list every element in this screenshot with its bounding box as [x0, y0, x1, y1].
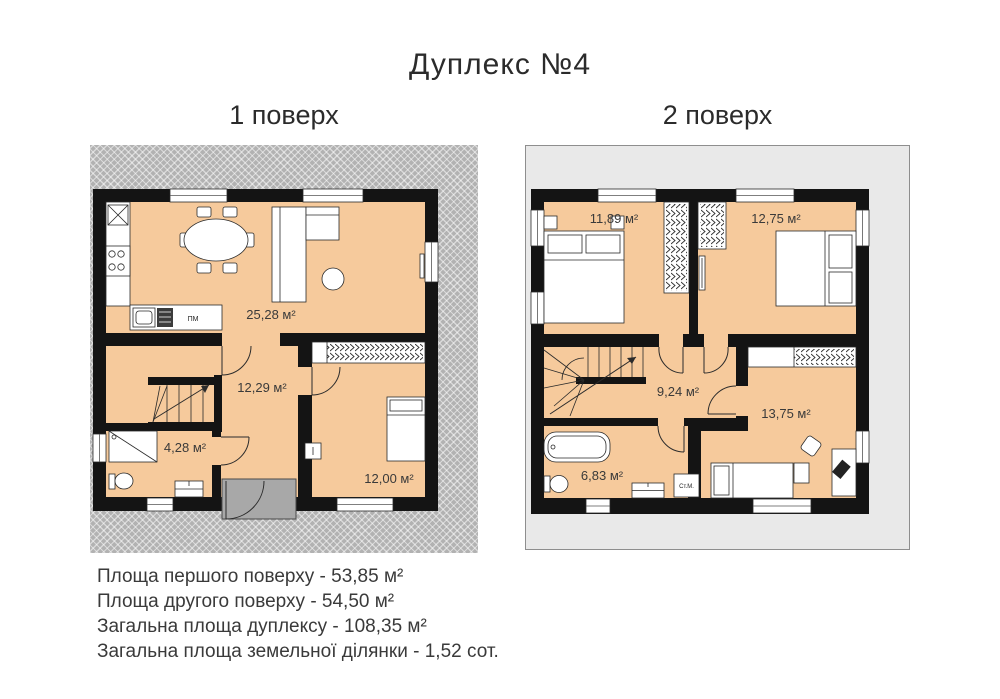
- floor2-drawing: Ст.М. 11,89 м² 12,75 м² 9,24 м²: [526, 146, 909, 549]
- bed-left: [544, 216, 624, 323]
- bathroom-area-label: 4,28 м²: [164, 440, 207, 455]
- washing-machine: Ст.М.: [674, 474, 699, 497]
- sink: [632, 483, 664, 498]
- bedroom-small-area-label: 13,75 м²: [761, 406, 811, 421]
- entrance-porch: [222, 479, 296, 519]
- bed-right: [776, 231, 856, 306]
- radiator-icon: [420, 254, 424, 278]
- hall-area-label: 12,29 м²: [237, 380, 287, 395]
- summary-block: Площа першого поверху - 53,85 м² Площа д…: [97, 564, 499, 664]
- desk: [832, 449, 856, 496]
- bed: [387, 397, 425, 461]
- floor2-label: 2 поверх: [525, 100, 910, 131]
- living-area-label: 25,28 м²: [246, 307, 296, 322]
- bathtub: [544, 432, 610, 462]
- floorplan-page: Дуплекс №4 1 поверх 2 поверх: [0, 0, 1000, 699]
- bedroom-left-area-label: 11,89 м²: [590, 211, 639, 226]
- bedside-table: [305, 443, 321, 459]
- bedroom-right-area-label: 12,75 м²: [751, 211, 801, 226]
- bedroom-area-label: 12,00 м²: [364, 471, 414, 486]
- radiator-icon: [699, 256, 705, 290]
- shower: [109, 431, 157, 462]
- wardrobe-right: [698, 202, 726, 249]
- floor2-plan: Ст.М. 11,89 м² 12,75 м² 9,24 м²: [525, 145, 910, 550]
- coffee-table: [322, 268, 344, 290]
- floor1-drawing: ПМ: [90, 145, 478, 553]
- bedside-table: [794, 463, 809, 483]
- summary-line: Загальна площа дуплексу - 108,35 м²: [97, 614, 499, 639]
- washing-machine-label: Ст.М.: [679, 484, 694, 490]
- sink: [175, 481, 203, 497]
- summary-line: Площа першого поверху - 53,85 м²: [97, 564, 499, 589]
- single-bed: [711, 463, 793, 498]
- wardrobe: [312, 342, 425, 363]
- hall-area-label: 9,24 м²: [657, 384, 700, 399]
- page-title: Дуплекс №4: [0, 48, 1000, 82]
- floor1-plan: ПМ: [90, 145, 478, 553]
- wardrobe-small-bedroom: [748, 347, 856, 367]
- floor1-label: 1 поверх: [90, 100, 478, 131]
- toilet: [544, 476, 568, 493]
- summary-line: Загальна площа земельної ділянки - 1,52 …: [97, 639, 499, 664]
- toilet: [109, 473, 133, 489]
- dishwasher-label: ПМ: [188, 316, 199, 323]
- bathroom-area-label: 6,83 м²: [581, 468, 624, 483]
- wardrobe-left: [664, 202, 689, 293]
- summary-line: Площа другого поверху - 54,50 м²: [97, 589, 499, 614]
